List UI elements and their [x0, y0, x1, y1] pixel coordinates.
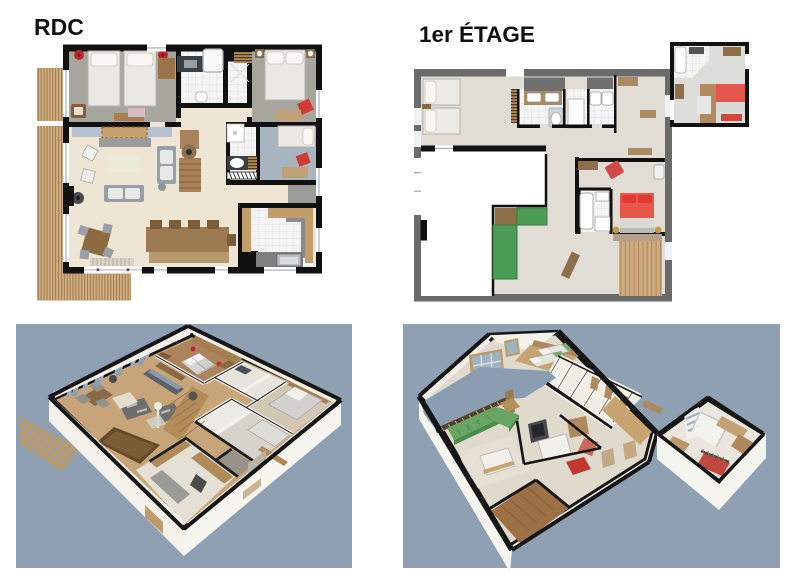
svg-text:1er ÉTAGE: 1er ÉTAGE: [419, 22, 535, 47]
svg-text:RDC: RDC: [34, 14, 84, 40]
